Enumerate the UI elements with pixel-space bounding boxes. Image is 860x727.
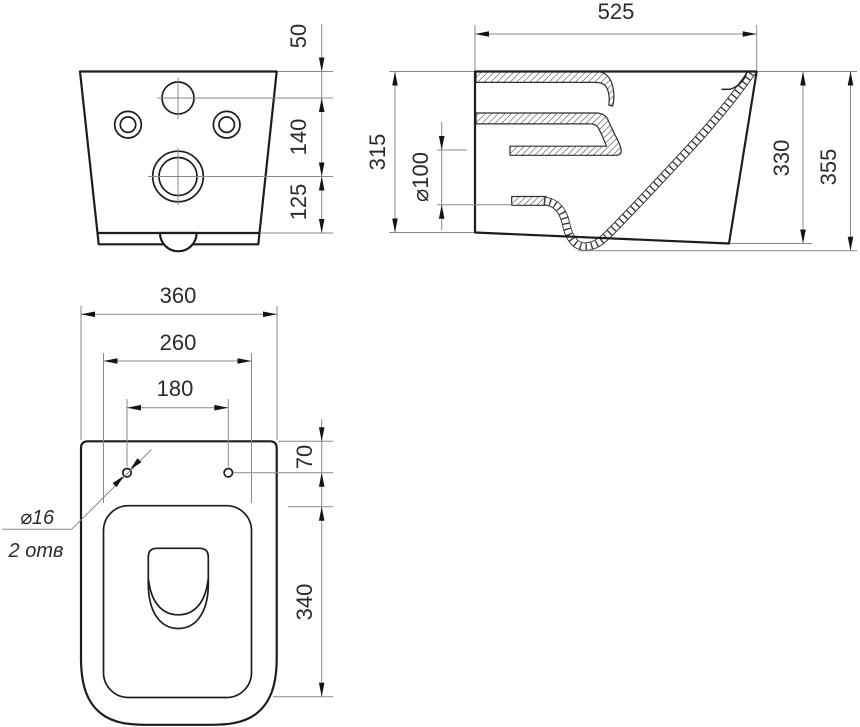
- dim-label-70: 70: [292, 445, 317, 469]
- arrowhead: [104, 358, 118, 364]
- mount-hole-right-outer: [213, 111, 240, 138]
- technical-drawing: 50 140 125 525 315: [0, 0, 860, 727]
- dim-label-360: 360: [160, 283, 197, 308]
- arrowhead: [127, 405, 141, 411]
- arrowhead: [743, 31, 757, 37]
- arrowhead: [319, 427, 325, 441]
- outlet-pipe-wall-section: [512, 197, 546, 206]
- arrowhead: [319, 507, 325, 521]
- arrowhead: [319, 177, 325, 191]
- arrowhead: [800, 230, 806, 244]
- dim-label-125: 125: [286, 184, 311, 221]
- arrowhead: [81, 312, 95, 318]
- mount-hole-right-inner: [219, 117, 234, 132]
- callout-holes: 2 отв: [8, 540, 64, 562]
- arrowhead: [848, 237, 854, 251]
- arrowhead: [319, 163, 325, 177]
- dim-label-330: 330: [769, 140, 794, 177]
- section-body-fill: [475, 72, 757, 244]
- arrowhead: [800, 72, 806, 86]
- dim-label-50: 50: [286, 24, 311, 48]
- arrowhead: [238, 358, 252, 364]
- dim-label-d100: ⌀100: [408, 152, 433, 202]
- section-view: 525 315 ⌀100 330 355: [365, 0, 857, 254]
- mount-hole-left-outer: [115, 111, 142, 138]
- seat-bolt-hole-left: [123, 469, 131, 477]
- drain-bump-fill: [160, 233, 197, 251]
- dim-label-355: 355: [816, 149, 841, 186]
- dim-label-140: 140: [286, 119, 311, 156]
- rear-view: 50 140 125: [80, 24, 333, 252]
- arrowhead: [319, 473, 325, 487]
- dim-label-340: 340: [292, 584, 317, 621]
- sump-waterline-arc: [149, 580, 208, 615]
- arrowhead: [439, 136, 445, 150]
- drawing-canvas: 50 140 125 525 315: [0, 0, 860, 727]
- arrowhead: [319, 58, 325, 72]
- mask-top: [560, 54, 790, 70]
- dim-label-315: 315: [365, 134, 390, 171]
- arrowhead: [319, 683, 325, 697]
- dim-label-180: 180: [157, 376, 194, 401]
- arrowhead: [439, 205, 445, 219]
- callout-diameter: ⌀16: [20, 507, 55, 529]
- arrowhead: [263, 312, 277, 318]
- mount-hole-left-inner: [120, 117, 135, 132]
- arrowhead: [319, 219, 325, 233]
- dim-label-260: 260: [160, 330, 197, 355]
- arrowhead: [113, 476, 124, 487]
- plan-body-outline: [81, 441, 277, 725]
- arrowhead: [214, 405, 228, 411]
- dim-label-525: 525: [598, 0, 635, 24]
- seat-bolt-hole-right: [224, 469, 232, 477]
- plan-view: ⌀16 2 отв 360 260 180 70 340: [2, 283, 333, 725]
- bowl-opening-outline: [148, 548, 208, 628]
- arrowhead: [392, 219, 398, 233]
- arrowhead: [392, 72, 398, 86]
- arrowhead: [848, 72, 854, 86]
- arrowhead: [130, 458, 141, 469]
- seat-rim-outline: [104, 506, 252, 698]
- arrowhead: [319, 98, 325, 112]
- arrowhead: [475, 31, 489, 37]
